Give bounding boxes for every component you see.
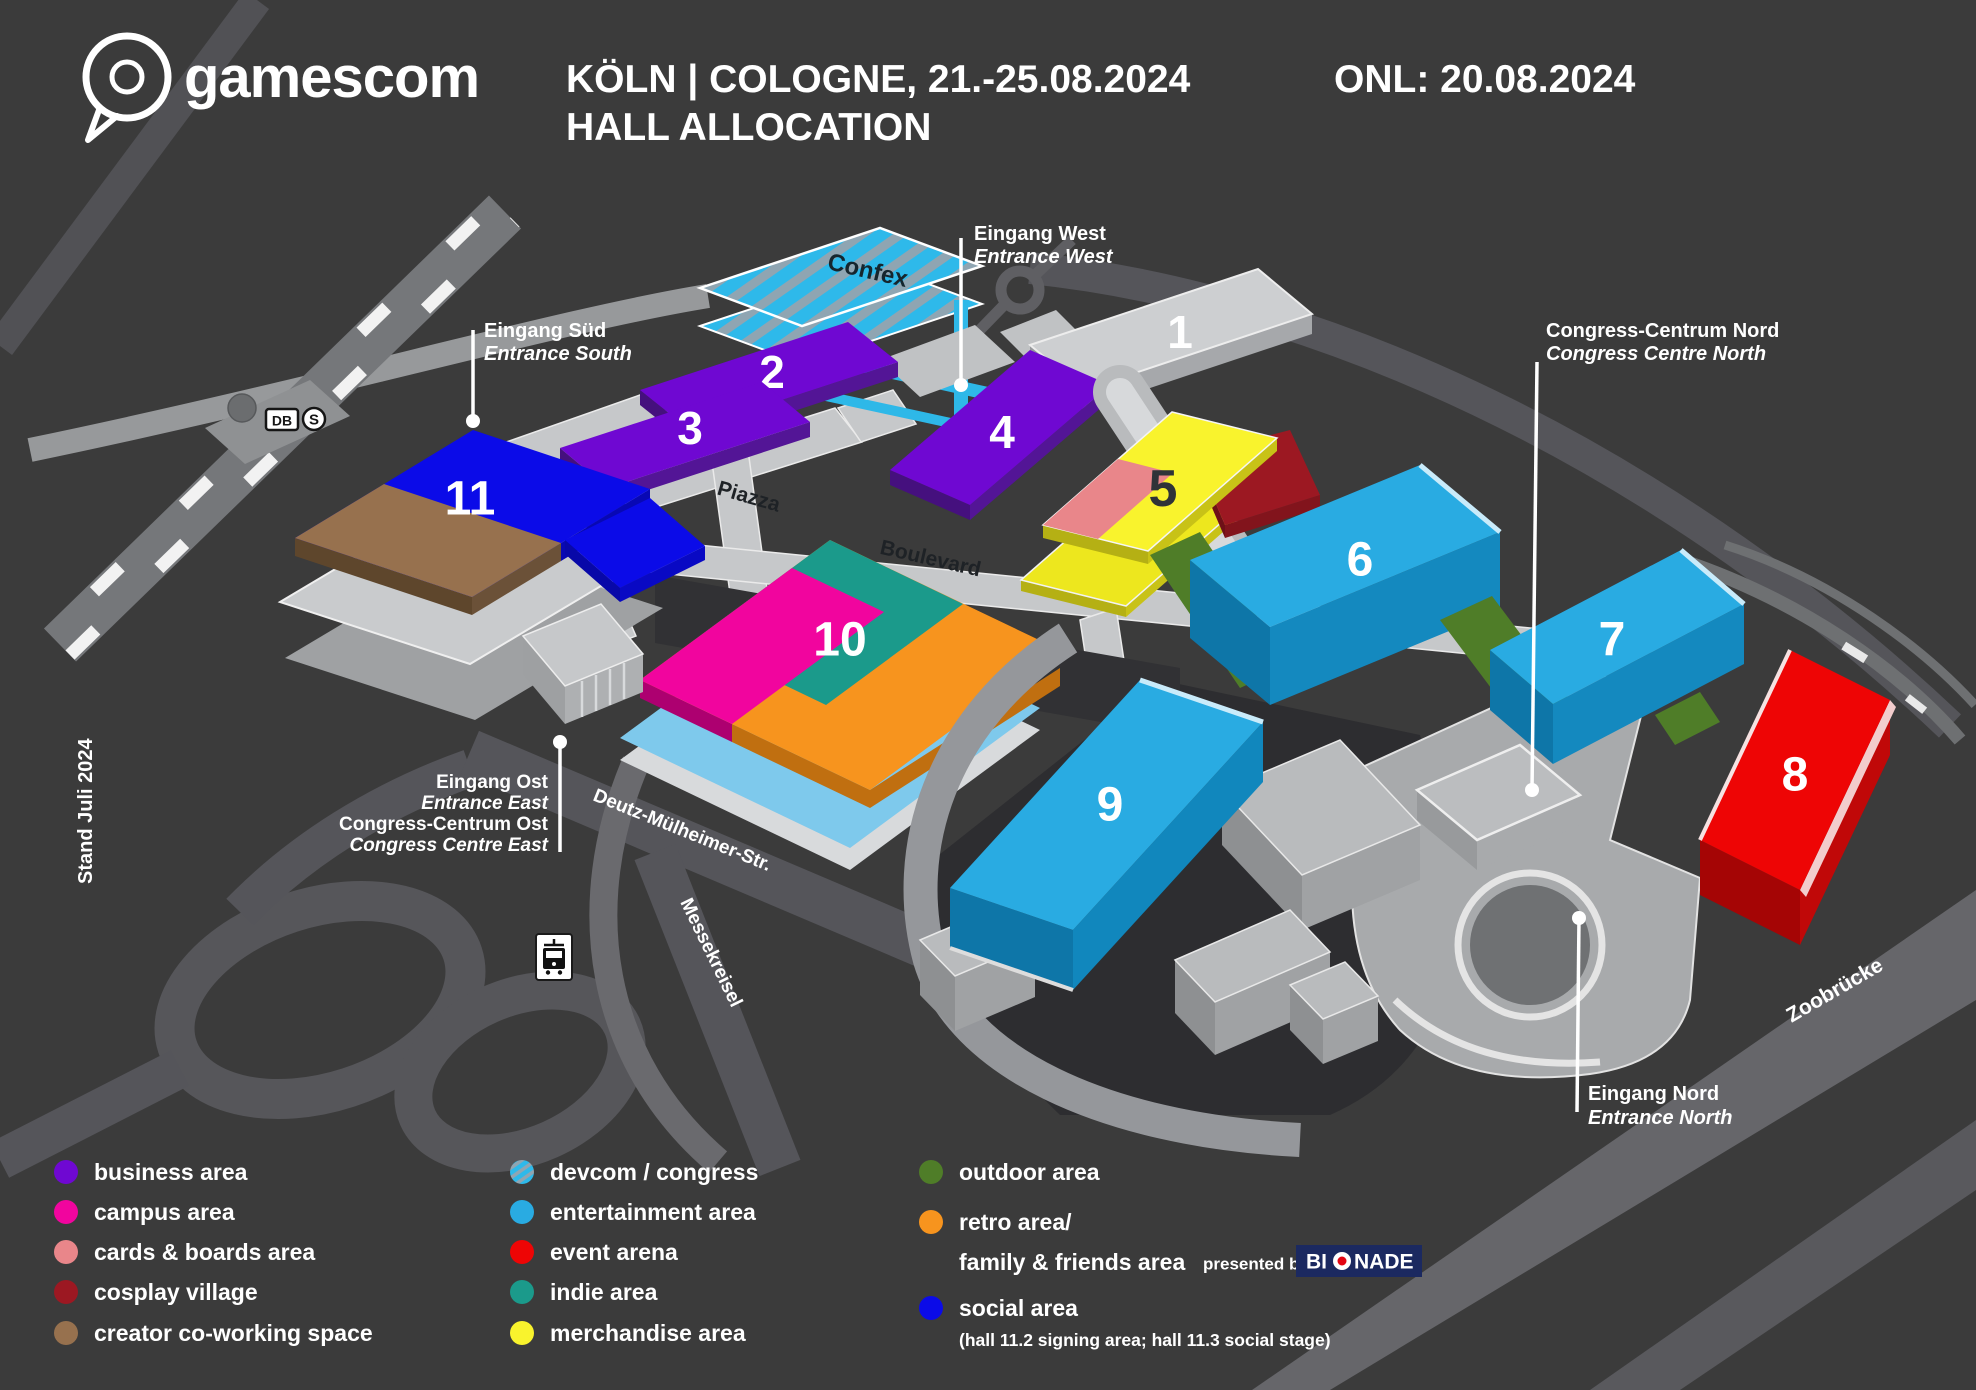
hall-10-number: 10 — [813, 614, 866, 667]
station-dome — [228, 394, 256, 422]
presented-by-label: presented by — [1203, 1255, 1309, 1274]
legend-label-retro-line1: retro area/ — [959, 1209, 1072, 1235]
hall-8-number: 8 — [1782, 749, 1809, 802]
hall-9-number: 9 — [1097, 779, 1124, 832]
header-onl-date: ONL: 20.08.2024 — [1334, 58, 1636, 101]
bionade-text-nade: NADE — [1354, 1251, 1414, 1274]
legend-col1: business area campus area cards & boards… — [54, 1159, 373, 1346]
legend-dot-retro — [919, 1210, 943, 1234]
congress-centre-east-label-en: Congress Centre East — [349, 835, 548, 856]
entrance-east-label-en: Entrance East — [421, 793, 548, 814]
legend-label-indie: indie area — [550, 1279, 658, 1305]
legend-label-cosplay: cosplay village — [94, 1279, 258, 1305]
legend-dot-indie — [510, 1280, 534, 1304]
header-title-line1: KÖLN | COLOGNE, 21.-25.08.2024 — [566, 58, 1191, 101]
svg-text:DB: DB — [272, 413, 292, 429]
congress-centre-north-label-de: Congress-Centrum Nord — [1546, 320, 1779, 342]
legend-label-campus: campus area — [94, 1199, 235, 1225]
bionade-text-bi: BI — [1306, 1251, 1327, 1274]
legend-dot-cards-boards — [54, 1240, 78, 1264]
legend-dot-campus — [54, 1200, 78, 1224]
legend-dot-outdoor — [919, 1160, 943, 1184]
legend-dot-devcom — [510, 1160, 534, 1184]
legend-label-social-note: (hall 11.2 signing area; hall 11.3 socia… — [959, 1330, 1331, 1350]
hall-11-number: 11 — [445, 473, 496, 526]
gamescom-hall-allocation-map: DB S 1 — [0, 0, 1976, 1390]
db-icon: DB — [266, 409, 298, 430]
entrance-north-label-de: Eingang Nord — [1588, 1083, 1719, 1105]
legend-label-retro-line2: family & friends area — [959, 1249, 1185, 1275]
stand-note: Stand Juli 2024 — [75, 738, 97, 884]
congress-centre-north-label-en: Congress Centre North — [1546, 343, 1766, 365]
legend-dot-business — [54, 1160, 78, 1184]
legend-dot-creator — [54, 1321, 78, 1345]
entrance-south-label-en: Entrance South — [484, 343, 632, 365]
hall-5-number: 5 — [1149, 460, 1178, 518]
bionade-logo: BI NADE — [1296, 1245, 1422, 1277]
legend-label-merchandise: merchandise area — [550, 1320, 746, 1346]
legend: business area campus area cards & boards… — [54, 1159, 1422, 1350]
legend-dot-cosplay — [54, 1280, 78, 1304]
hall-8: 8 — [1700, 650, 1896, 945]
svg-text:S: S — [309, 412, 319, 429]
entrance-east-label-de: Eingang Ost — [436, 772, 549, 793]
hall-6-number: 6 — [1347, 534, 1374, 587]
sbahn-icon: S — [303, 408, 325, 430]
legend-label-business: business area — [94, 1159, 248, 1185]
header: gamescom KÖLN | COLOGNE, 21.-25.08.2024 … — [86, 36, 1636, 149]
legend-label-event-arena: event arena — [550, 1239, 678, 1265]
legend-dot-event-arena — [510, 1240, 534, 1264]
hall-7-number: 7 — [1599, 614, 1626, 667]
header-title-line2: HALL ALLOCATION — [566, 106, 931, 149]
legend-col3: outdoor area retro area/ family & friend… — [919, 1159, 1422, 1350]
legend-dot-entertainment — [510, 1200, 534, 1224]
legend-dot-merchandise — [510, 1321, 534, 1345]
entrance-west-label-de: Eingang West — [974, 223, 1106, 245]
legend-label-entertainment: entertainment area — [550, 1199, 756, 1225]
entrance-west-label-en: Entrance West — [974, 246, 1114, 268]
legend-label-creator: creator co-working space — [94, 1320, 373, 1346]
hall-3-number: 3 — [677, 402, 703, 454]
legend-dot-social — [919, 1296, 943, 1320]
entrance-south-label-de: Eingang Süd — [484, 320, 606, 342]
legend-label-devcom: devcom / congress — [550, 1159, 758, 1185]
legend-label-social: social area — [959, 1295, 1078, 1321]
hall-1-number: 1 — [1167, 306, 1193, 358]
legend-col2: devcom / congress entertainment area eve… — [510, 1159, 758, 1346]
gamescom-wordmark: gamescom — [184, 45, 479, 110]
congress-centre-east-label-de: Congress-Centrum Ost — [339, 814, 549, 835]
legend-label-cards-boards: cards & boards area — [94, 1239, 315, 1265]
entrance-north-label-en: Entrance North — [1588, 1107, 1732, 1129]
tram-icon — [536, 934, 572, 980]
hall-4-number: 4 — [989, 406, 1015, 458]
legend-label-outdoor: outdoor area — [959, 1159, 1100, 1185]
